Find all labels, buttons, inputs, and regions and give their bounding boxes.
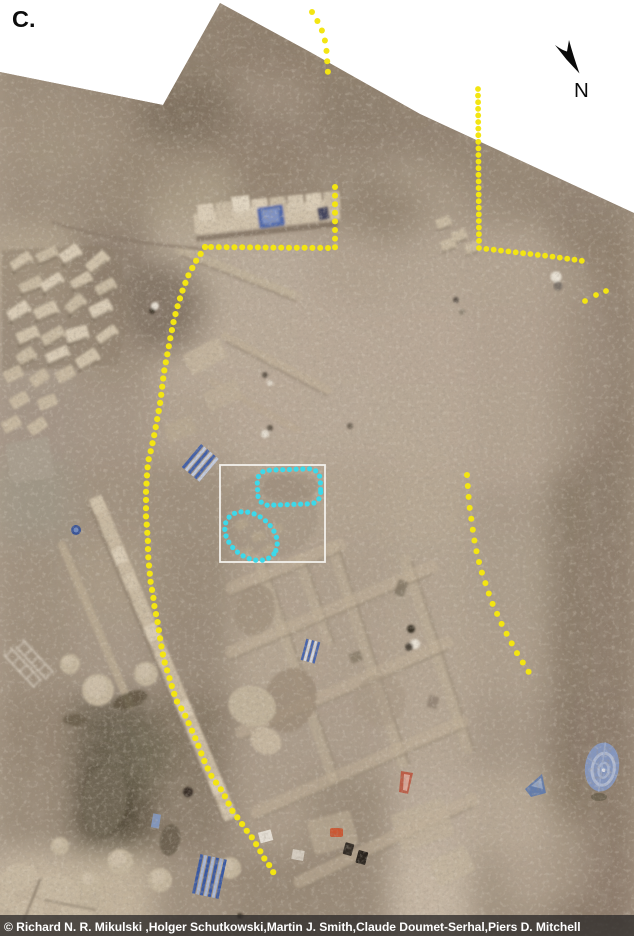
svg-text:N: N [574,79,589,102]
svg-text:C.: C. [12,6,36,32]
svg-text:© Richard N. R. Mikulski ,Holg: © Richard N. R. Mikulski ,Holger Schutko… [4,920,581,934]
